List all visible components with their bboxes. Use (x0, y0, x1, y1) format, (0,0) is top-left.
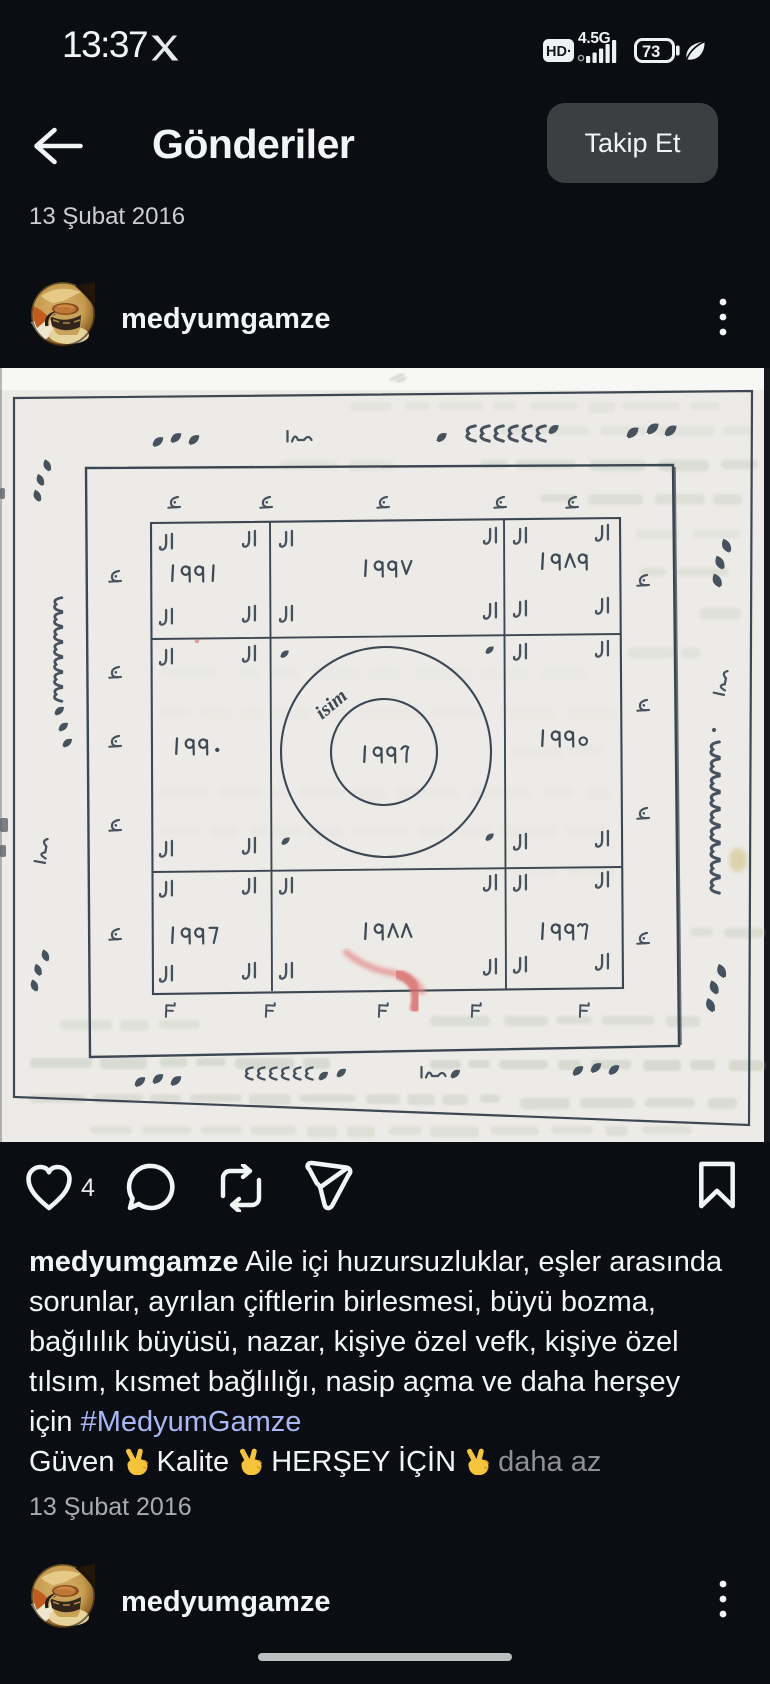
svg-text:73: 73 (642, 43, 660, 61)
svg-text:HD·: HD· (546, 44, 572, 60)
